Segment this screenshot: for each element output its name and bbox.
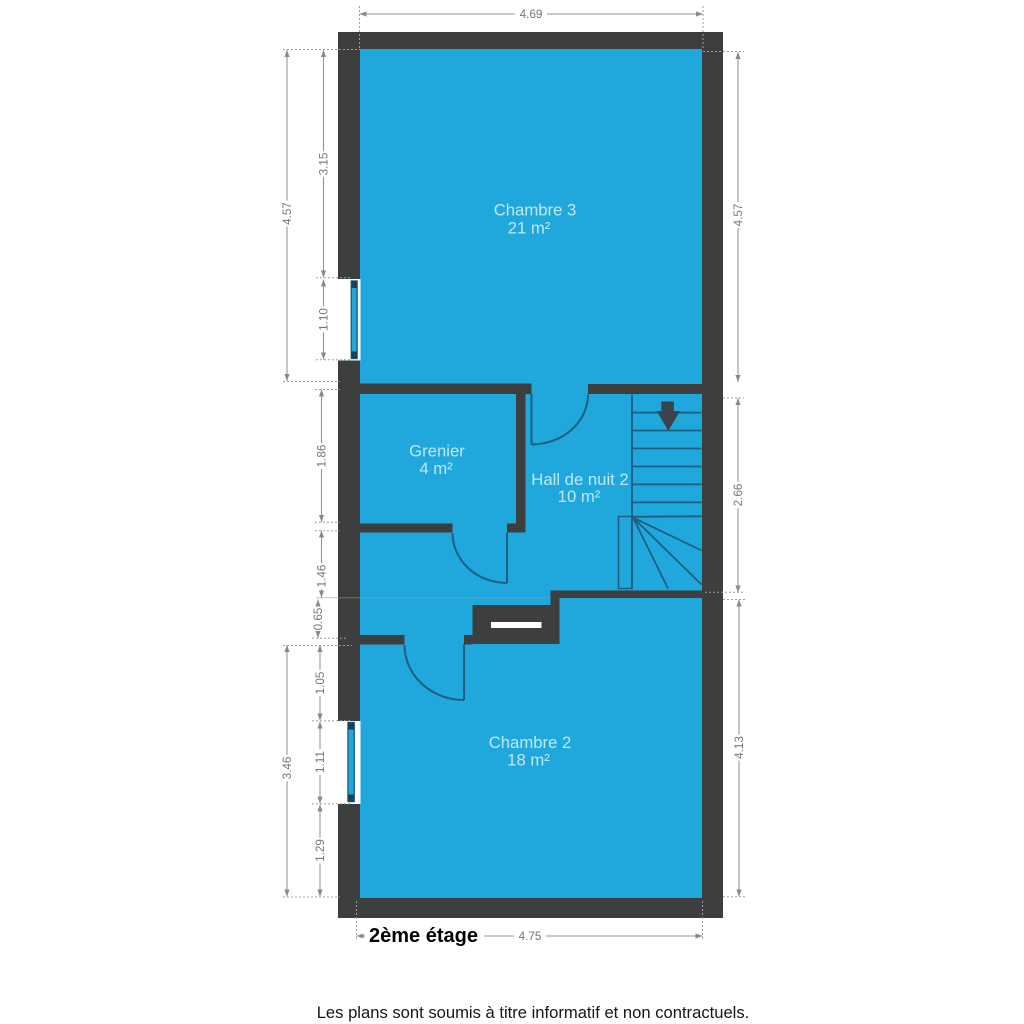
svg-text:21 m²: 21 m² (508, 219, 551, 238)
svg-text:1.86: 1.86 (316, 445, 329, 468)
svg-text:1.46: 1.46 (316, 565, 329, 588)
svg-text:3.15: 3.15 (318, 152, 331, 175)
svg-text:4.57: 4.57 (281, 202, 294, 225)
svg-text:Les plans sont soumis à titre: Les plans sont soumis à titre informatif… (317, 1003, 750, 1022)
svg-text:2ème étage: 2ème étage (369, 925, 478, 947)
svg-text:10 m²: 10 m² (558, 487, 601, 506)
svg-text:1.11: 1.11 (314, 751, 327, 773)
svg-text:4 m²: 4 m² (419, 459, 453, 478)
svg-text:1.05: 1.05 (314, 671, 327, 694)
svg-text:3.46: 3.46 (281, 757, 294, 780)
svg-text:1.29: 1.29 (314, 839, 327, 862)
svg-text:1.10: 1.10 (318, 308, 331, 331)
svg-text:4.75: 4.75 (519, 930, 542, 943)
svg-text:Chambre 2: Chambre 2 (489, 733, 572, 752)
svg-text:4.13: 4.13 (733, 736, 746, 759)
svg-text:4.69: 4.69 (520, 8, 543, 21)
svg-text:4.57: 4.57 (732, 204, 745, 227)
svg-text:Chambre 3: Chambre 3 (494, 201, 577, 220)
svg-text:0.65: 0.65 (312, 607, 325, 630)
svg-text:Grenier: Grenier (409, 442, 465, 461)
svg-text:2.66: 2.66 (732, 484, 745, 507)
svg-text:18 m²: 18 m² (507, 751, 550, 770)
